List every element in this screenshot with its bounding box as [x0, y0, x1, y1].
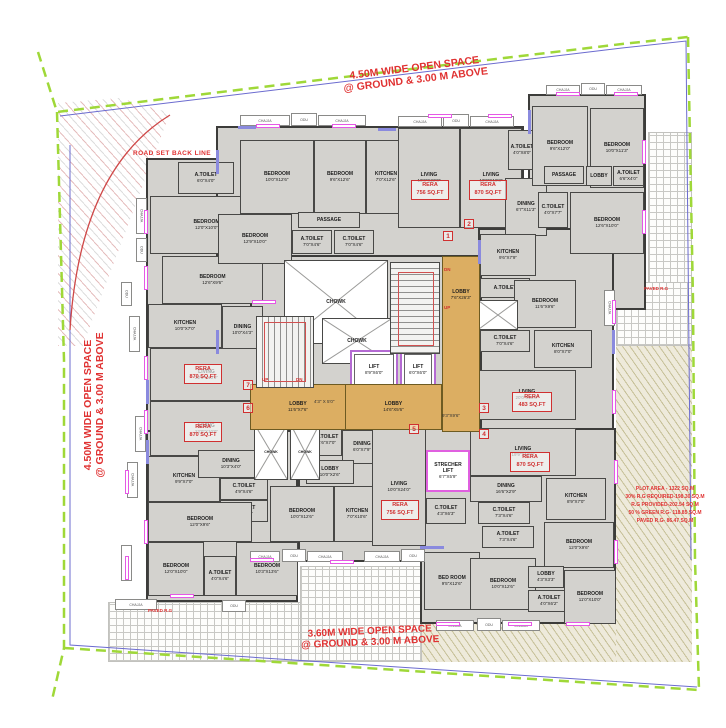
room-dims: 10'3"X13'6": [256, 569, 279, 574]
room: C.TOILET7'0"X4'6": [334, 230, 374, 254]
unit-number: 4: [482, 431, 486, 438]
stretcher-lift: STRECHER LIFT6'7"X5'9": [426, 450, 470, 492]
unit-number: 3: [482, 405, 486, 412]
room-dims: 8'0"X7'0": [554, 349, 572, 354]
wall-segment: [216, 330, 219, 354]
window: [642, 140, 646, 164]
ledge: ODU: [121, 282, 132, 306]
ledge-label: ODU: [125, 290, 129, 298]
room: DINING16'6"X2'9": [470, 476, 542, 502]
stair-rail: [264, 322, 306, 382]
ledge-label: CHAJJA: [139, 427, 143, 440]
room-dims: 10'0"X12'6": [291, 514, 314, 519]
window: [144, 266, 148, 290]
open-space-note-left: 4.50M WIDE OPEN SPACE @ GROUND & 3.00 M …: [82, 290, 106, 520]
room-dims: 6'6"X4'0": [620, 176, 638, 181]
room: C.TOILET7'3"X4'6": [478, 502, 530, 524]
rera-label: RERA: [470, 181, 506, 189]
lobby-dim: 9'3"X9'6": [442, 413, 460, 418]
room-dims: 7'0"X4'6": [496, 341, 514, 346]
window: [642, 210, 646, 234]
unit-number: 5: [412, 426, 416, 433]
window: [508, 622, 532, 626]
room-dims: 7'3"X4'6": [499, 537, 517, 542]
room-dims: 7'0"X4'6": [345, 242, 363, 247]
chowk: CHOWK: [290, 424, 320, 480]
ledge: ODU: [291, 113, 317, 126]
ledge-label: CHAJJA: [133, 327, 137, 340]
wall-segment: [420, 546, 444, 549]
room: KITCHEN8'0"X7'0": [534, 330, 592, 368]
unit-marker: 6: [243, 403, 253, 413]
ledge: ODU: [581, 83, 605, 95]
room-label: LOBBY: [590, 173, 608, 179]
room-dims: 9'6"X12'0": [550, 146, 570, 151]
room: BEDROOM12'0"X9'6": [148, 502, 252, 542]
stair-dn-label: DN: [296, 377, 303, 382]
room-label: PASSAGE: [317, 217, 341, 223]
room-dims: 4'9"X4'6": [235, 489, 253, 494]
window: [144, 210, 148, 234]
room-dims: 4'0"X4'6": [211, 576, 229, 581]
ledge: ODU: [136, 238, 147, 262]
room-label: A.TOILET: [494, 285, 517, 291]
room-dims: 10'0"X7'0": [175, 326, 195, 331]
room-label: PASSAGE: [552, 172, 576, 178]
wall-segment: [528, 110, 531, 134]
room-dims: 6'0"X7'9": [353, 447, 371, 452]
rera-label: RERA: [185, 365, 221, 373]
room-dims: 14'6"X5'6": [383, 407, 403, 412]
lobby-column: LOBBY7'6"X26'3": [442, 256, 480, 432]
ledge-label: ODU: [230, 604, 238, 608]
unit-number: 1: [446, 233, 450, 240]
ledge-label: CHAJJA: [258, 119, 271, 123]
room-dims: 8'9"X6'0": [365, 370, 383, 375]
room-dims: 7'0"X4'6": [303, 242, 321, 247]
rera-value: 756 SQ.FT: [382, 509, 418, 517]
duct-x: [479, 301, 517, 329]
wall-segment: [146, 380, 149, 404]
plot-stat-line: 50 % GREEN R.G- 118.85 SQ.M: [608, 509, 722, 517]
room: LOBBY: [586, 166, 612, 186]
rera-value: 870 SQ.FT: [185, 373, 221, 381]
rera-box: RERA483 SQ.FT: [512, 392, 552, 412]
lobby-mid: LOBBY14'6"X5'6": [346, 384, 442, 430]
ledge-label: CHAJJA: [140, 209, 144, 222]
room-label: STRECHER LIFT: [429, 462, 467, 474]
window: [144, 356, 148, 380]
wall-segment: [478, 240, 481, 264]
room: C.TOILET7'0"X4'6": [480, 330, 530, 352]
unit-number: 7: [246, 382, 250, 389]
stair-up-label: UP: [444, 305, 450, 310]
window: [330, 560, 354, 564]
open-space-note-line: 4.50M WIDE OPEN SPACE: [82, 290, 94, 520]
room: BEDROOM12'9"X10'0": [218, 214, 292, 264]
room: BEDROOM11'6"X9'6": [514, 280, 576, 328]
room-dims: 10'0"X12'6": [492, 584, 515, 589]
room: KITCHEN10'0"X7'0": [148, 304, 222, 348]
room-dims: 4'6"X7'0": [318, 440, 336, 445]
plot-stat-line: PAVED R.G- 86.47 SQ.M: [608, 517, 722, 525]
plot-stat-line: PLOT AREA - 1322 SQ.M: [608, 485, 722, 493]
wall-segment: [378, 128, 396, 131]
room-dims: 10'0"X12'6": [266, 177, 289, 182]
room-dims: 11'6"X9'6": [535, 304, 555, 309]
room: C.TOILET4'9"X4'6": [220, 478, 268, 500]
ledge-label: ODU: [452, 119, 460, 123]
unit-number: 6: [246, 405, 250, 412]
wall-segment: [146, 440, 149, 464]
room: C.TOILET4'0"X7'7": [538, 192, 568, 228]
room-dims: 11'0"X10'0": [579, 597, 602, 602]
window: [566, 622, 590, 626]
open-space-note-line: @ GROUND & 3.00 M ABOVE: [94, 290, 106, 520]
room-dims: 6'0"X6'0": [409, 370, 427, 375]
window: [125, 556, 129, 580]
room: BEDROOM12'0"X9'6": [544, 522, 614, 568]
ledge: ODU: [282, 549, 306, 562]
room-dims: 12'6"X9'6": [202, 280, 222, 285]
window: [428, 114, 452, 118]
rera-label: RERA: [185, 423, 221, 431]
room-dims: 12'0"X10'0": [165, 569, 188, 574]
room-dims: 6'7"X11'3": [516, 207, 536, 212]
room: BEDROOM10'0"X12'6": [470, 558, 536, 610]
rera-value: 483 SQ.FT: [513, 401, 551, 409]
wall-segment: [238, 126, 256, 129]
room-dims: 12'9"X10'0": [244, 239, 267, 244]
room-dims: 9'9"X7'0": [175, 479, 193, 484]
window: [144, 520, 148, 544]
stair-up-label: UP: [262, 377, 268, 382]
room: KITCHEN9'6"X7'9": [480, 234, 536, 276]
room-dims: 8'9"X7'0": [567, 499, 585, 504]
room-dims: 12'0"X10'0": [195, 225, 218, 230]
window: [488, 114, 512, 118]
ledge: CHAJJA: [364, 551, 400, 562]
plot-stat-line: 30% R.G REQUIRED-198.30 SQ.M: [608, 493, 722, 501]
ledge: CHAJJA: [129, 316, 140, 352]
room-label: CHOWK: [298, 450, 312, 454]
window: [556, 92, 580, 96]
room-dims: 10'0"X4'3": [232, 330, 252, 335]
room-dims: 10'0"X11'3": [606, 148, 629, 153]
unit-marker: 5: [409, 424, 419, 434]
room: PASSAGE: [544, 166, 584, 184]
ledge-label: ODU: [589, 87, 597, 91]
room-dims: 4'3"X3'3": [537, 577, 555, 582]
unit-marker: 2: [464, 219, 474, 229]
rera-label: RERA: [412, 181, 448, 189]
room-dims: 12'6"X10'0": [596, 223, 619, 228]
room-dims: 6'0"X4'0": [197, 178, 215, 183]
window: [144, 410, 148, 434]
room-dims: 9'5"X12'6": [442, 581, 462, 586]
room-label: CHOWK: [326, 299, 345, 305]
room: A.TOILET6'0"X4'0": [178, 162, 234, 194]
ledge-label: ODU: [409, 554, 417, 558]
room: LOBBY4'3"X3'3": [528, 566, 564, 588]
room: BEDROOM10'0"X12'6": [270, 486, 334, 542]
rera-label: RERA: [513, 393, 551, 401]
rera-box: RERA870 SQ.FT: [469, 180, 507, 200]
wall-segment: [216, 150, 219, 174]
rera-value: 756 SQ.FT: [412, 189, 448, 197]
chowk: CHOWK: [254, 424, 288, 480]
room-dims: 7'0"X12'6": [376, 177, 396, 182]
room-dims: 6'7"X5'9": [439, 474, 457, 479]
room-dims: 9'6"X7'9": [499, 255, 517, 260]
room-dims: 9'6"X12'6": [330, 177, 350, 182]
unit-number: 2: [467, 221, 471, 228]
ledge-label: CHAJJA: [375, 555, 388, 559]
room-dims: 7'3"X4'6": [495, 513, 513, 518]
unit-marker: 4: [479, 429, 489, 439]
room-label: CHOWK: [347, 338, 366, 344]
duct-box: [478, 300, 518, 330]
room: C.TOILET4'3"X6'3": [426, 498, 466, 524]
road-setback-label: ROAD SET BACK LINE: [133, 150, 211, 157]
window: [256, 124, 280, 128]
ledge: ODU: [401, 549, 425, 562]
room: A.TOILET7'3"X4'6": [482, 526, 534, 548]
rera-value: 870 SQ.FT: [185, 431, 221, 439]
wall-segment: [612, 330, 615, 354]
ledge: ODU: [222, 600, 246, 612]
room: A.TOILET4'0"X4'6": [204, 556, 236, 596]
rera-box: RERA756 SQ.FT: [381, 500, 419, 520]
stair-dn-label: DN: [444, 267, 451, 272]
room-dims: 4'0"X6'2": [540, 601, 558, 606]
ledge-label: CHAJJA: [131, 473, 135, 486]
room-dims: 12'0"X9'6": [190, 522, 210, 527]
ledge-label: ODU: [290, 554, 298, 558]
plot-statistics: PLOT AREA - 1322 SQ.M 30% R.G REQUIRED-1…: [608, 485, 722, 525]
room-label: CHOWK: [264, 450, 278, 454]
rera-box: RERA756 SQ.FT: [411, 180, 449, 200]
room-dims: 4'0"X8'0": [513, 150, 531, 155]
ledge-label: CHAJJA: [335, 119, 348, 123]
rera-box: RERA870 SQ.FT: [184, 364, 222, 384]
lobby-dim: 4'3" X 5'0": [314, 399, 334, 404]
ledge-label: ODU: [300, 118, 308, 122]
room: A.TOILET6'6"X4'0": [613, 166, 644, 186]
ledge-label: CHAJJA: [129, 603, 142, 607]
window: [250, 558, 274, 562]
ledge-label: CHAJJA: [608, 301, 612, 314]
window: [612, 300, 616, 324]
room-dims: 11'6"X7'6": [288, 407, 308, 412]
unit-marker: 7: [243, 380, 253, 390]
unit-marker: 1: [443, 231, 453, 241]
room-dims: 7'6"X26'3": [451, 295, 471, 300]
room-dims: 10'3"X4'0": [221, 464, 241, 469]
unit-marker: 3: [479, 403, 489, 413]
room: BEDROOM12'0"X10'0": [148, 542, 204, 596]
room-dims: 10'0"X24'0": [388, 487, 411, 492]
window: [125, 470, 129, 494]
room-dims: 12'0"X9'6": [569, 545, 589, 550]
rera-box: RERA870 SQ.FT: [510, 452, 550, 472]
rera-label: RERA: [382, 501, 418, 509]
room-dims: 4'0"X7'7": [544, 210, 562, 215]
room: A.TOILET7'0"X4'6": [292, 230, 332, 254]
lobby-left: LOBBY11'6"X7'6": [250, 384, 346, 430]
paved-rg-label: PAVED R.G: [148, 608, 172, 613]
window: [612, 390, 616, 414]
window: [614, 540, 618, 564]
rera-value: 870 SQ.FT: [470, 189, 506, 197]
plot-stat-line: R.G PROVIDED-202.54 SQ.M: [608, 501, 722, 509]
room: BEDROOM9'6"X12'6": [314, 140, 366, 214]
room-dims: 16'6"X2'9": [496, 489, 516, 494]
room-dims: 10'0"X2'6": [320, 472, 340, 477]
room: LIVING10'0"X24'0": [372, 428, 426, 546]
room: BEDROOM12'6"X10'0": [570, 192, 644, 254]
ledge-label: CHAJJA: [485, 120, 498, 124]
rera-value: 870 SQ.FT: [511, 461, 549, 469]
room: LIVING10'0"X22'0": [398, 128, 460, 228]
floor-plan: A.TOILET6'0"X4'0" BEDROOM12'0"X10'0" BED…: [0, 0, 726, 728]
stair-rail: [398, 272, 434, 346]
ledge-label: CHAJJA: [413, 120, 426, 124]
window: [170, 594, 194, 598]
ledge-label: ODU: [140, 246, 144, 254]
window: [332, 124, 356, 128]
rera-box: RERA870 SQ.FT: [184, 422, 222, 442]
room-dims: 4'3"X6'3": [437, 511, 455, 516]
rera-label: RERA: [511, 453, 549, 461]
room: BEDROOM10'0"X12'6": [240, 140, 314, 214]
room: PASSAGE: [298, 212, 360, 228]
room: BEDROOM11'0"X10'0": [564, 570, 616, 624]
ledge-label: CHAJJA: [318, 555, 331, 559]
paved-rg-label: PAVED R.G: [644, 286, 668, 291]
window: [252, 300, 276, 304]
window: [614, 92, 638, 96]
window: [614, 460, 618, 484]
room-dims: 7'0"X10'6": [347, 514, 367, 519]
room: KITCHEN8'9"X7'0": [546, 478, 606, 520]
